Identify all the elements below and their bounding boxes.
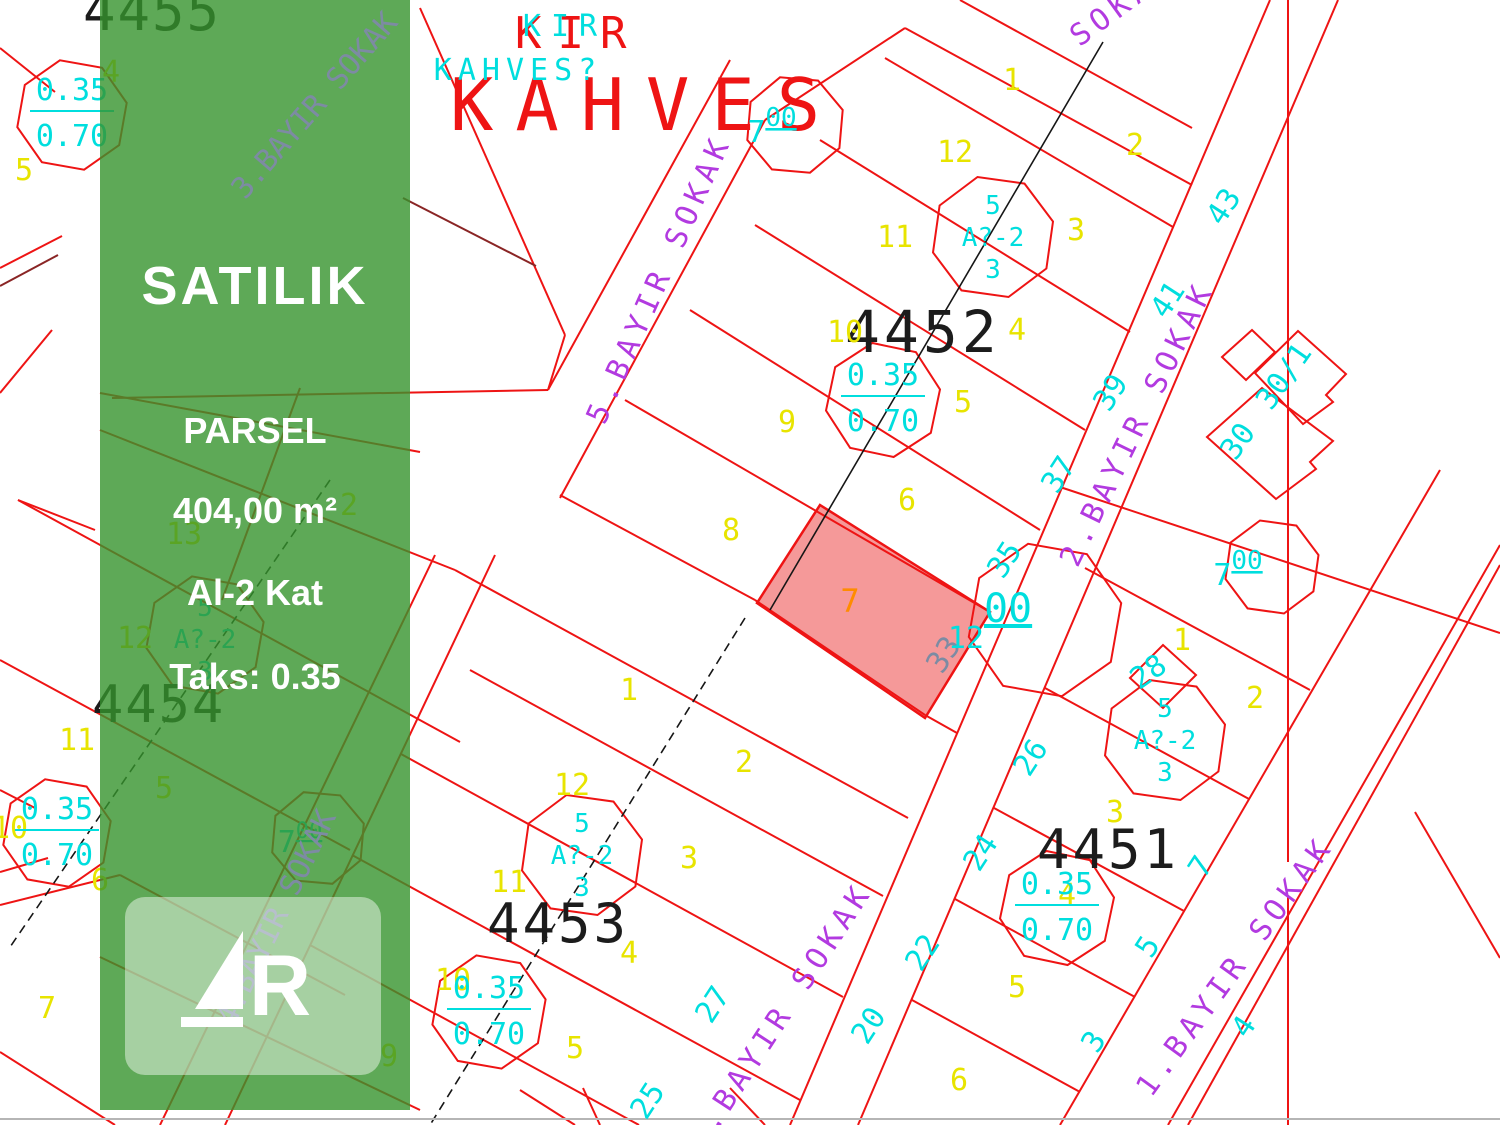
- parcel-number: 1: [1003, 63, 1021, 98]
- parcel-number: 3: [1106, 795, 1124, 830]
- highlighted-parcel: [757, 505, 990, 718]
- svg-text:5: 5: [574, 809, 590, 839]
- svg-text:A?-2: A?-2: [962, 223, 1025, 253]
- parcel-number: 11: [491, 865, 527, 900]
- logo-a-shape: [195, 931, 243, 1009]
- listing-image: 4455 4452 4453 4454 4451 KIR KAHVES KIR …: [0, 0, 1500, 1125]
- parcel-number: 2: [1246, 681, 1264, 716]
- address-number: 3: [1074, 1025, 1113, 1059]
- agency-logo-mark: R: [125, 897, 381, 1075]
- width-marker: 700: [1213, 546, 1262, 593]
- svg-text:3: 3: [574, 873, 590, 903]
- logo-r-letter: R: [249, 938, 311, 1034]
- address-number: 43: [1200, 182, 1249, 231]
- address-number: 4: [1224, 1010, 1263, 1044]
- address-number: 24: [957, 828, 1006, 877]
- parcel-number: 12: [937, 135, 973, 170]
- block-label: 4453: [487, 892, 629, 955]
- parcel-number: 4: [1008, 313, 1026, 348]
- address-number: 7: [1181, 850, 1220, 884]
- agency-logo: R: [125, 897, 381, 1075]
- zoning-marker: 5 A?-2 3: [551, 809, 614, 903]
- parcel-number: 6: [950, 1063, 968, 1098]
- address-number: 5: [1128, 930, 1167, 964]
- parcel-number: 6: [898, 483, 916, 518]
- banner-content: SATILIK PARSEL 404,00 m² Al-2 Kat Taks: …: [100, 0, 410, 1110]
- poi-text-cyan: KIR: [523, 9, 607, 44]
- parcel-number: 8: [722, 513, 740, 548]
- banner-taks: Taks: 0.35: [100, 656, 410, 698]
- banner-title: SATILIK: [100, 255, 410, 317]
- banner-parcel-label: PARSEL: [100, 410, 410, 452]
- parcel-number: 3: [1067, 213, 1085, 248]
- address-number: 28: [1124, 648, 1174, 697]
- street-name: SOKAK: [1063, 0, 1181, 54]
- highlighted-parcel-number: 7: [840, 582, 859, 620]
- svg-text:3: 3: [985, 255, 1001, 285]
- parcel-number: 2: [735, 745, 753, 780]
- address-number: 25: [624, 1076, 673, 1125]
- address-number: 26: [1007, 733, 1056, 782]
- street-name: 2.BAYIR SOKAK: [1053, 276, 1222, 572]
- svg-text:0.35: 0.35: [847, 358, 919, 393]
- svg-text:0.35: 0.35: [453, 971, 525, 1006]
- svg-text:0.35: 0.35: [1021, 867, 1093, 902]
- zoning-marker: 5 A?-2 3: [962, 191, 1025, 285]
- ratio-marker: 0.35 0.70: [841, 358, 925, 439]
- svg-text:0.70: 0.70: [1021, 913, 1093, 948]
- svg-text:0.70: 0.70: [847, 404, 919, 439]
- address-number: 20: [845, 1001, 894, 1050]
- parcel-number: 5: [566, 1031, 584, 1066]
- parcel-number: 7: [38, 991, 56, 1026]
- svg-text:3: 3: [1157, 758, 1173, 788]
- svg-text:0.70: 0.70: [453, 1017, 525, 1052]
- parcel-number: 12: [554, 768, 590, 803]
- street-name: 5.BAYIR SOKAK: [580, 129, 739, 429]
- svg-text:5: 5: [1157, 694, 1173, 724]
- parcel-number: 5: [1008, 970, 1026, 1005]
- svg-text:0.35: 0.35: [36, 73, 108, 108]
- svg-text:0.70: 0.70: [21, 838, 93, 873]
- parcel-number: 2: [1126, 128, 1144, 163]
- banner-floors: Al-2 Kat: [100, 572, 410, 614]
- parcel-number: 5: [15, 153, 33, 188]
- ratio-marker: 0.35 0.70: [447, 971, 531, 1052]
- svg-text:5: 5: [985, 191, 1001, 221]
- address-number: 35: [981, 535, 1030, 584]
- address-number: 22: [899, 928, 948, 977]
- address-number: 27: [689, 980, 738, 1029]
- parcel-number: 4: [620, 936, 638, 971]
- parcel-number: 3: [680, 841, 698, 876]
- logo-a-underline: [181, 1017, 243, 1027]
- parcel-number: 1: [620, 673, 638, 708]
- svg-text:A?-2: A?-2: [1134, 726, 1197, 756]
- poi-text-cyan: KAHVES?: [434, 53, 602, 88]
- svg-text:0.70: 0.70: [36, 119, 108, 154]
- parcel-number: 1: [1173, 623, 1191, 658]
- parcel-number: 9: [778, 405, 796, 440]
- svg-text:0.35: 0.35: [21, 792, 93, 827]
- block-label: 4452: [845, 298, 1001, 366]
- svg-text:A?-2: A?-2: [551, 841, 614, 871]
- parcel-number: 11: [877, 220, 913, 255]
- parcel-number: 10: [827, 315, 863, 350]
- parcel-number: 5: [954, 385, 972, 420]
- zoning-marker: 5 A?-2 3: [1134, 694, 1197, 788]
- parcel-number: 11: [59, 723, 95, 758]
- banner-area: 404,00 m²: [100, 490, 410, 532]
